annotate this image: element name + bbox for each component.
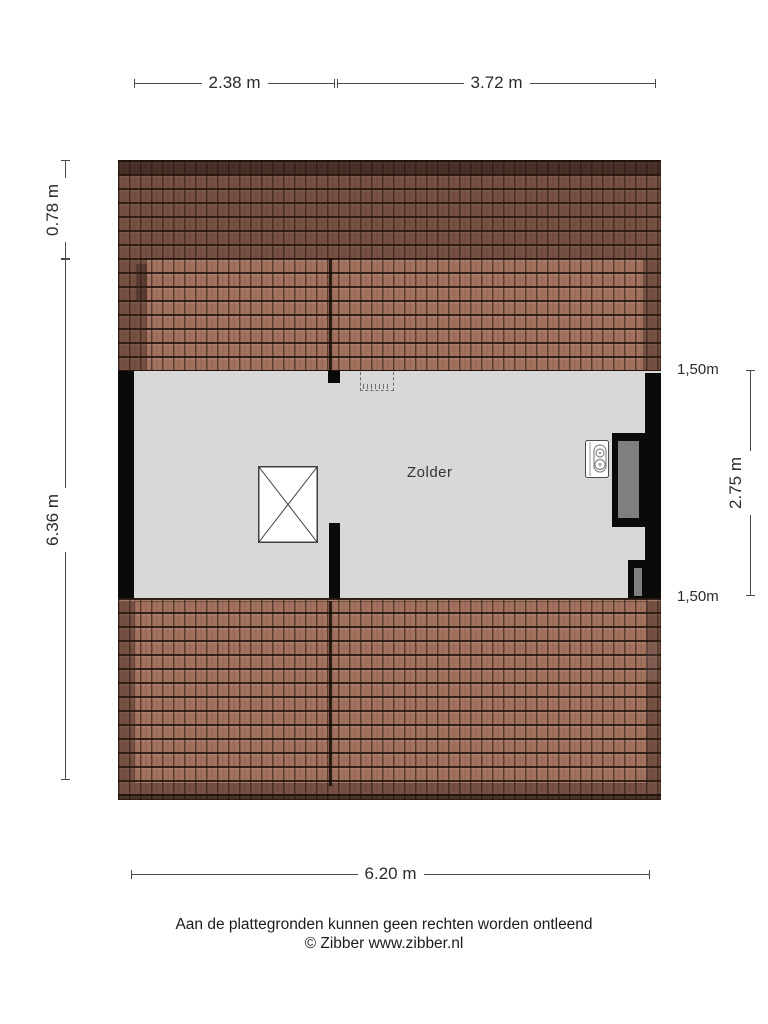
roof-bottom-shade-left [118,601,134,784]
dimension-line [65,260,66,488]
footer: Aan de plattegronden kunnen geen rechten… [0,915,768,953]
dimension-line [424,874,650,875]
dimension-right-height: 2.75 m [737,370,763,596]
dimension-left-lower: 6.36 m [52,259,78,780]
roof-top-ridge-shade [118,160,661,175]
dimension-line [338,83,464,84]
dimension-top-right: 3.72 m [337,74,656,92]
dimension-label-right-top: 1,50m [677,361,719,378]
floor-area-zolder [118,371,661,598]
dimension-label: 6.20 m [358,864,424,884]
dimension-tick [655,79,656,88]
dimension-line [65,161,66,178]
storage-panel [634,568,642,596]
wall-stub-middle [329,523,340,598]
roof-bottom-field-outline [134,601,648,784]
dimension-top-left: 2.38 m [134,74,335,92]
wall-stub-top [328,371,340,383]
roof-bottom-eave-shade [118,794,661,800]
dimension-label: 0.78 m [43,178,63,242]
footer-credit: © Zibber www.zibber.nl [0,934,768,953]
dimension-line [65,242,66,259]
dimension-tick [334,79,335,88]
dimension-label: 3.72 m [464,73,530,93]
roof-bottom-shade-right [648,601,661,784]
roof-top-divider [329,258,332,371]
floorplan-canvas: 2.38 m 3.72 m 0.78 m 6.36 m 1,50m 2.75 m… [0,0,768,1024]
dimension-tick [61,779,70,780]
footer-disclaimer: Aan de plattegronden kunnen geen rechten… [0,915,768,934]
roof-top-shade-right [644,258,661,371]
dimension-line [132,874,358,875]
dimension-line [750,515,751,595]
dimension-line [135,83,202,84]
wall-left [118,371,134,598]
chimney-panel [618,441,639,518]
dimension-label: 2.38 m [202,73,268,93]
stairwell-cross-icon [258,466,318,543]
hatch-comb [363,384,391,389]
roof-bottom-divider [329,601,332,786]
roof-bottom-notch [646,643,658,680]
dimension-tick [649,870,650,879]
dimension-label: 2.75 m [726,451,746,515]
roof-top-field-outline [146,258,644,371]
dimension-line [530,83,656,84]
dimension-tick [746,595,755,596]
wall-right [645,373,661,598]
dimension-label: 6.36 m [43,488,63,552]
roof-hatch-dashed-icon [360,372,394,391]
boiler-icon [585,440,609,478]
dimension-line [65,552,66,780]
dimension-left-upper: 0.78 m [52,160,78,259]
room-label: Zolder [407,464,453,481]
dimension-line [268,83,335,84]
dimension-label-right-bottom: 1,50m [677,588,719,605]
dimension-bottom: 6.20 m [131,865,650,883]
dimension-line [750,371,751,451]
